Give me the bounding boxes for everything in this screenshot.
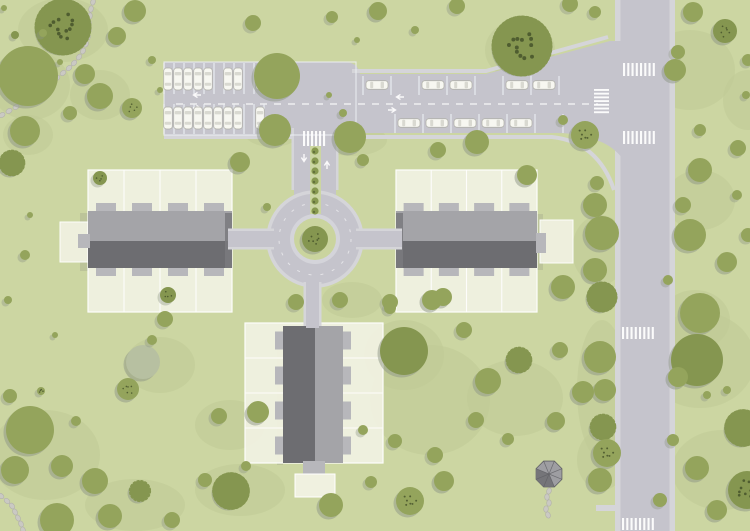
crosswalk-stripe bbox=[627, 63, 629, 76]
tree-speckle bbox=[127, 386, 129, 388]
tree-speckle bbox=[99, 180, 101, 182]
tree-canopy bbox=[664, 59, 686, 81]
car-rear-window bbox=[205, 122, 211, 125]
crosswalk-stripe bbox=[653, 131, 655, 144]
tree-speckle bbox=[41, 389, 43, 391]
tree-canopy bbox=[11, 31, 19, 39]
tree-canopy bbox=[37, 1, 89, 53]
tree-speckle bbox=[317, 233, 319, 235]
crosswalk-stripe bbox=[643, 327, 645, 339]
patio bbox=[509, 203, 529, 212]
tree-canopy bbox=[411, 26, 419, 34]
tree-canopy bbox=[723, 386, 731, 394]
tree-speckle bbox=[606, 447, 608, 449]
car-body bbox=[234, 107, 243, 129]
tree-speckle bbox=[122, 388, 124, 390]
parked-car bbox=[454, 119, 476, 128]
tree-canopy bbox=[147, 335, 157, 345]
tree-speckle bbox=[311, 236, 313, 238]
crosswalk-stripe bbox=[626, 327, 628, 339]
tree-canopy bbox=[590, 176, 604, 190]
parked-car bbox=[194, 68, 203, 90]
car-body bbox=[454, 119, 476, 128]
tree-canopy bbox=[685, 456, 709, 480]
east-terrace-entrance-stub bbox=[536, 233, 546, 253]
crosswalk-stripe bbox=[626, 518, 628, 530]
parked-car bbox=[204, 107, 213, 129]
patio bbox=[342, 402, 351, 420]
car-windshield bbox=[257, 111, 263, 114]
tree-canopy bbox=[245, 15, 261, 31]
car-rear-window bbox=[165, 83, 171, 86]
car-body bbox=[510, 119, 532, 128]
tree-speckle bbox=[601, 448, 603, 450]
car-rear-window bbox=[370, 82, 373, 88]
car-rear-window bbox=[195, 83, 201, 86]
crosswalk-stripe bbox=[636, 63, 638, 76]
tree-canopy bbox=[126, 345, 160, 379]
roof-light-half bbox=[88, 211, 232, 241]
tree-speckle bbox=[580, 138, 582, 140]
tree-speckle bbox=[744, 492, 747, 495]
footpath-stub bbox=[596, 505, 616, 511]
crosswalk-stripe bbox=[622, 327, 624, 339]
car-body bbox=[234, 68, 243, 90]
patio bbox=[168, 203, 188, 212]
tree-canopy bbox=[434, 471, 454, 491]
tree-canopy bbox=[430, 142, 446, 158]
tree-speckle bbox=[409, 495, 411, 497]
stepping-stone bbox=[543, 506, 548, 513]
tree-speckle bbox=[511, 38, 515, 42]
tree-canopy bbox=[130, 481, 150, 501]
tree-canopy bbox=[288, 294, 304, 310]
tree-canopy bbox=[588, 283, 616, 311]
patio bbox=[342, 367, 351, 385]
car-rear-window bbox=[175, 122, 181, 125]
car-body bbox=[366, 81, 388, 90]
car-body bbox=[184, 107, 193, 129]
car-body bbox=[174, 107, 183, 129]
car-windshield bbox=[195, 72, 201, 75]
tree-speckle bbox=[68, 27, 72, 31]
tree-speckle bbox=[530, 55, 534, 59]
tree-canopy bbox=[319, 493, 343, 517]
tree-canopy bbox=[591, 415, 615, 439]
crosswalk-stripe bbox=[640, 131, 642, 144]
stepping-stone bbox=[545, 494, 550, 500]
car-body bbox=[482, 119, 504, 128]
crosswalk-stripe bbox=[311, 131, 313, 146]
crosswalk-stripe bbox=[307, 131, 309, 146]
tree-speckle bbox=[128, 111, 130, 113]
tree-canopy bbox=[388, 434, 402, 448]
tree-canopy bbox=[0, 151, 24, 175]
car-windshield bbox=[235, 111, 241, 114]
crosswalk-stripe bbox=[635, 518, 637, 530]
car-rear-window bbox=[514, 120, 517, 126]
median-bush bbox=[311, 147, 318, 154]
tree-speckle bbox=[726, 29, 728, 31]
tree-canopy bbox=[71, 416, 81, 426]
tree-canopy bbox=[717, 252, 737, 272]
car-body bbox=[426, 119, 448, 128]
tree-speckle bbox=[126, 386, 128, 388]
patio bbox=[342, 332, 351, 350]
tree-canopy bbox=[507, 348, 531, 372]
tree-canopy bbox=[98, 504, 122, 528]
gazebo-pavilion bbox=[536, 461, 562, 487]
tree-canopy bbox=[653, 493, 667, 507]
crosswalk-stripe bbox=[594, 96, 609, 98]
tree-canopy bbox=[326, 11, 338, 23]
tree-canopy bbox=[688, 158, 712, 182]
car-body bbox=[184, 68, 193, 90]
tree-canopy bbox=[494, 18, 550, 74]
tree-canopy bbox=[517, 165, 537, 185]
car-rear-window bbox=[175, 83, 181, 86]
parked-car bbox=[224, 68, 233, 90]
tree-canopy bbox=[10, 116, 40, 146]
car-body bbox=[224, 68, 233, 90]
tree-canopy bbox=[427, 447, 443, 463]
car-rear-window bbox=[165, 122, 171, 125]
tree-speckle bbox=[738, 491, 741, 494]
car-body bbox=[214, 107, 223, 129]
tree-canopy bbox=[683, 2, 703, 22]
tree-canopy bbox=[241, 461, 251, 471]
tree-speckle bbox=[515, 46, 519, 50]
tree-canopy bbox=[369, 2, 387, 20]
roof-dark-half bbox=[283, 326, 315, 463]
patio bbox=[342, 437, 351, 455]
tree-speckle bbox=[529, 43, 533, 47]
tree-canopy bbox=[148, 56, 156, 64]
car-rear-window bbox=[205, 83, 211, 86]
tree-speckle bbox=[165, 291, 167, 293]
east-leg-curb-bottom bbox=[356, 247, 402, 250]
tree-speckle bbox=[134, 109, 136, 111]
tree-canopy bbox=[703, 391, 711, 399]
tree-speckle bbox=[70, 23, 74, 27]
car-windshield bbox=[205, 72, 211, 75]
tree-speckle bbox=[612, 452, 614, 454]
car-windshield bbox=[215, 111, 221, 114]
tree-speckle bbox=[316, 239, 318, 241]
roof-light-half bbox=[396, 211, 537, 241]
parked-car bbox=[422, 81, 444, 90]
tree-speckle bbox=[527, 32, 531, 36]
tree-speckle bbox=[728, 32, 730, 34]
car-windshield bbox=[175, 72, 181, 75]
car-windshield bbox=[185, 72, 191, 75]
car-body bbox=[174, 68, 183, 90]
tree-speckle bbox=[101, 175, 103, 177]
patio bbox=[439, 203, 459, 212]
car-body bbox=[194, 107, 203, 129]
entrance-stub bbox=[78, 234, 90, 248]
car-rear-window bbox=[185, 83, 191, 86]
tree-canopy bbox=[230, 152, 250, 172]
tree-speckle bbox=[740, 487, 743, 490]
parked-car bbox=[510, 119, 532, 128]
crosswalk-stripe bbox=[636, 131, 638, 144]
car-windshield bbox=[235, 72, 241, 75]
tree-canopy bbox=[52, 332, 58, 338]
car-rear-window bbox=[454, 82, 457, 88]
tree-speckle bbox=[606, 455, 608, 457]
tree-speckle bbox=[308, 240, 310, 242]
tree-canopy bbox=[157, 87, 163, 93]
tree-speckle bbox=[127, 392, 129, 394]
tree-speckle bbox=[515, 37, 519, 41]
car-windshield bbox=[175, 111, 181, 114]
tree-canopy bbox=[87, 83, 113, 109]
parked-car bbox=[174, 68, 183, 90]
tree-canopy bbox=[354, 37, 360, 43]
car-windshield bbox=[165, 111, 171, 114]
tree-canopy bbox=[502, 433, 514, 445]
car-body bbox=[204, 68, 213, 90]
patio bbox=[132, 203, 152, 212]
tree-canopy bbox=[211, 408, 227, 424]
tree-canopy bbox=[334, 121, 366, 153]
tree-canopy bbox=[551, 275, 575, 299]
tree-speckle bbox=[603, 452, 605, 454]
tree-speckle bbox=[584, 129, 586, 131]
tree-canopy bbox=[675, 197, 691, 213]
tree-canopy bbox=[396, 487, 424, 515]
tree-speckle bbox=[507, 43, 511, 47]
car-windshield bbox=[521, 82, 524, 88]
crosswalk-stripe bbox=[639, 518, 641, 530]
tree bbox=[492, 18, 551, 77]
tree-canopy bbox=[1, 456, 29, 484]
tree-speckle bbox=[726, 27, 728, 29]
roof-dark-half bbox=[88, 241, 232, 268]
tree-speckle bbox=[602, 456, 604, 458]
car-windshield bbox=[497, 120, 500, 126]
patio bbox=[474, 203, 494, 212]
tree-canopy bbox=[302, 226, 328, 252]
tree-canopy bbox=[254, 53, 300, 99]
car-body bbox=[204, 107, 213, 129]
tree-canopy bbox=[164, 512, 180, 528]
south-footpath bbox=[306, 281, 319, 328]
car-windshield bbox=[413, 120, 416, 126]
tree-canopy bbox=[663, 275, 673, 285]
tree-speckle bbox=[723, 36, 725, 38]
tree-canopy bbox=[456, 322, 472, 338]
crosswalk-stripe bbox=[640, 63, 642, 76]
tree bbox=[212, 474, 249, 511]
tree-canopy bbox=[588, 468, 612, 492]
tree-canopy bbox=[572, 381, 594, 403]
tree-canopy bbox=[589, 6, 601, 18]
crosswalk-stripe bbox=[639, 327, 641, 339]
tree-speckle bbox=[515, 50, 519, 54]
car-rear-window bbox=[195, 122, 201, 125]
crosswalk-stripe bbox=[648, 518, 650, 530]
crosswalk-stripe bbox=[631, 518, 633, 530]
west-leg-curb-top bbox=[228, 229, 274, 232]
tree-speckle bbox=[167, 296, 169, 298]
parked-car bbox=[174, 107, 183, 129]
median-bush-detail bbox=[313, 181, 315, 183]
parked-car bbox=[450, 81, 472, 90]
car-rear-window bbox=[185, 122, 191, 125]
west-leg-curb-bottom bbox=[228, 247, 274, 250]
patio bbox=[404, 203, 424, 212]
crosswalk-stripe bbox=[643, 518, 645, 530]
car-windshield bbox=[165, 72, 171, 75]
patio bbox=[404, 267, 424, 276]
tree-canopy bbox=[726, 411, 750, 445]
car-windshield bbox=[437, 82, 440, 88]
east-leg-curb-top bbox=[356, 229, 402, 232]
tree-canopy bbox=[93, 171, 107, 185]
median-bush bbox=[311, 177, 318, 184]
tree-canopy bbox=[594, 379, 616, 401]
tree-canopy bbox=[39, 29, 47, 37]
tree-canopy bbox=[384, 302, 396, 314]
parked-car bbox=[398, 119, 420, 128]
parked-car bbox=[533, 81, 555, 90]
tree-canopy bbox=[358, 425, 368, 435]
parked-car bbox=[194, 107, 203, 129]
car-rear-window bbox=[537, 82, 540, 88]
crosswalk-stripe bbox=[649, 131, 651, 144]
tree-canopy bbox=[552, 342, 568, 358]
car-body bbox=[164, 68, 173, 90]
crosswalk-stripe bbox=[652, 518, 654, 530]
tree-speckle bbox=[409, 503, 411, 505]
tree-canopy bbox=[157, 311, 173, 327]
parked-car bbox=[184, 68, 193, 90]
car-windshield bbox=[465, 82, 468, 88]
car-rear-window bbox=[225, 83, 231, 86]
tree-speckle bbox=[590, 134, 592, 136]
tree-speckle bbox=[136, 106, 138, 108]
crosswalk-stripe bbox=[623, 63, 625, 76]
tree-speckle bbox=[584, 137, 586, 139]
patio bbox=[439, 267, 459, 276]
crosswalk-stripe bbox=[652, 327, 654, 339]
tree-canopy bbox=[667, 434, 679, 446]
tree-canopy bbox=[198, 473, 212, 487]
crosswalk-stripe bbox=[649, 63, 651, 76]
tree-canopy bbox=[558, 115, 568, 125]
tree-canopy bbox=[75, 64, 95, 84]
tree-speckle bbox=[412, 503, 414, 505]
car-windshield bbox=[195, 111, 201, 114]
tree-canopy bbox=[571, 121, 599, 149]
median-bush bbox=[311, 207, 318, 214]
patio bbox=[474, 267, 494, 276]
median-bush bbox=[311, 157, 318, 164]
tree-canopy bbox=[326, 92, 332, 98]
car-rear-window bbox=[215, 122, 221, 125]
car-body bbox=[533, 81, 555, 90]
crosswalk-stripe bbox=[319, 131, 321, 146]
tree-speckle bbox=[609, 455, 611, 457]
crosswalk-stripe bbox=[303, 131, 305, 146]
tree-canopy bbox=[380, 327, 428, 375]
tree-speckle bbox=[59, 35, 63, 39]
parked-car bbox=[234, 68, 243, 90]
tree-canopy bbox=[585, 216, 619, 250]
patio bbox=[275, 367, 284, 385]
patio bbox=[275, 402, 284, 420]
crosswalk-stripe bbox=[632, 131, 634, 144]
median-bush-detail bbox=[313, 161, 315, 163]
tree-speckle bbox=[587, 137, 589, 139]
tree-canopy bbox=[51, 455, 73, 477]
tree-canopy bbox=[583, 258, 607, 282]
tree-canopy bbox=[732, 190, 742, 200]
median-bush-detail bbox=[313, 171, 315, 173]
tree-speckle bbox=[415, 500, 417, 502]
crosswalk-stripe bbox=[635, 327, 637, 339]
car-rear-window bbox=[458, 120, 461, 126]
crosswalk-stripe bbox=[648, 327, 650, 339]
tree-canopy bbox=[593, 439, 621, 467]
crosswalk-stripe bbox=[632, 63, 634, 76]
tree-speckle bbox=[406, 500, 408, 502]
tree-canopy bbox=[259, 114, 291, 146]
crosswalk-stripe bbox=[323, 131, 325, 146]
parked-car bbox=[164, 68, 173, 90]
tree-canopy bbox=[57, 59, 63, 65]
tree-canopy bbox=[1, 5, 7, 11]
tree-speckle bbox=[722, 25, 724, 27]
car-windshield bbox=[225, 72, 231, 75]
tree-speckle bbox=[65, 37, 69, 41]
car-body bbox=[450, 81, 472, 90]
tree-canopy bbox=[3, 389, 17, 403]
tree-canopy bbox=[339, 109, 347, 117]
tree-speckle bbox=[52, 20, 56, 24]
site-plan-map bbox=[0, 0, 750, 531]
parked-car bbox=[204, 68, 213, 90]
tree-speckle bbox=[131, 392, 133, 394]
car-body bbox=[422, 81, 444, 90]
median-bush-detail bbox=[313, 191, 315, 193]
crosswalk-stripe bbox=[594, 100, 609, 102]
tree-canopy bbox=[468, 412, 484, 428]
parked-car bbox=[506, 81, 528, 90]
car-rear-window bbox=[426, 82, 429, 88]
tree-canopy bbox=[707, 500, 727, 520]
tree-canopy bbox=[108, 27, 126, 45]
median-bush bbox=[311, 197, 318, 204]
car-body bbox=[194, 68, 203, 90]
car-body bbox=[506, 81, 528, 90]
median-bush-detail bbox=[313, 151, 315, 153]
tree-speckle bbox=[518, 54, 522, 58]
tree-speckle bbox=[39, 391, 41, 393]
median-bush bbox=[311, 167, 318, 174]
tree-speckle bbox=[57, 18, 61, 22]
tree-canopy bbox=[63, 106, 77, 120]
tree-speckle bbox=[315, 243, 317, 245]
tree-canopy bbox=[6, 406, 54, 454]
tree-canopy bbox=[465, 130, 489, 154]
south-path-curb-left bbox=[304, 282, 307, 326]
tree-canopy bbox=[332, 292, 348, 308]
tree-speckle bbox=[404, 496, 406, 498]
car-rear-window bbox=[402, 120, 405, 126]
